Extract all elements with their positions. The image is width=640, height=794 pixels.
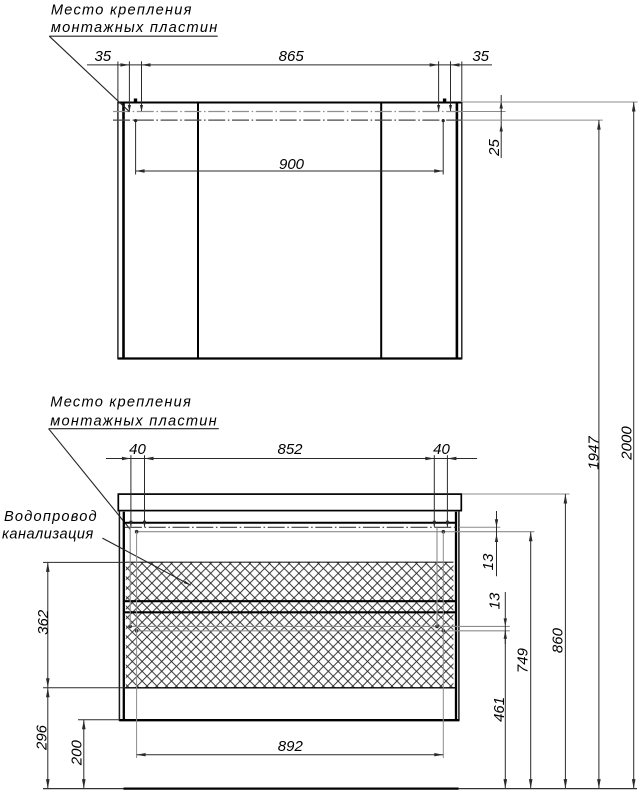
- svg-text:852: 852: [277, 441, 303, 458]
- svg-text:860: 860: [550, 627, 567, 653]
- svg-text:296: 296: [34, 724, 51, 751]
- svg-text:канализация: канализация: [2, 527, 94, 543]
- svg-text:2000: 2000: [619, 426, 636, 461]
- svg-text:Место крепления: Место крепления: [50, 395, 192, 411]
- svg-text:13: 13: [480, 553, 497, 570]
- svg-text:35: 35: [472, 48, 489, 65]
- svg-text:Место крепления: Место крепления: [51, 3, 193, 19]
- svg-text:362: 362: [35, 609, 52, 635]
- svg-text:25: 25: [486, 139, 503, 157]
- svg-text:892: 892: [278, 738, 304, 755]
- svg-text:Водопровод: Водопровод: [4, 509, 98, 525]
- svg-text:40: 40: [433, 441, 450, 458]
- svg-text:монтажных пластин: монтажных пластин: [50, 413, 218, 429]
- svg-text:1947: 1947: [585, 436, 602, 470]
- svg-text:461: 461: [491, 697, 508, 722]
- svg-text:865: 865: [279, 48, 305, 65]
- svg-text:200: 200: [69, 740, 86, 767]
- svg-text:749: 749: [515, 647, 532, 673]
- svg-text:монтажных пластин: монтажных пластин: [51, 20, 219, 36]
- svg-text:900: 900: [279, 156, 305, 173]
- svg-text:35: 35: [94, 48, 111, 65]
- svg-text:13: 13: [487, 592, 504, 609]
- svg-text:40: 40: [129, 441, 146, 458]
